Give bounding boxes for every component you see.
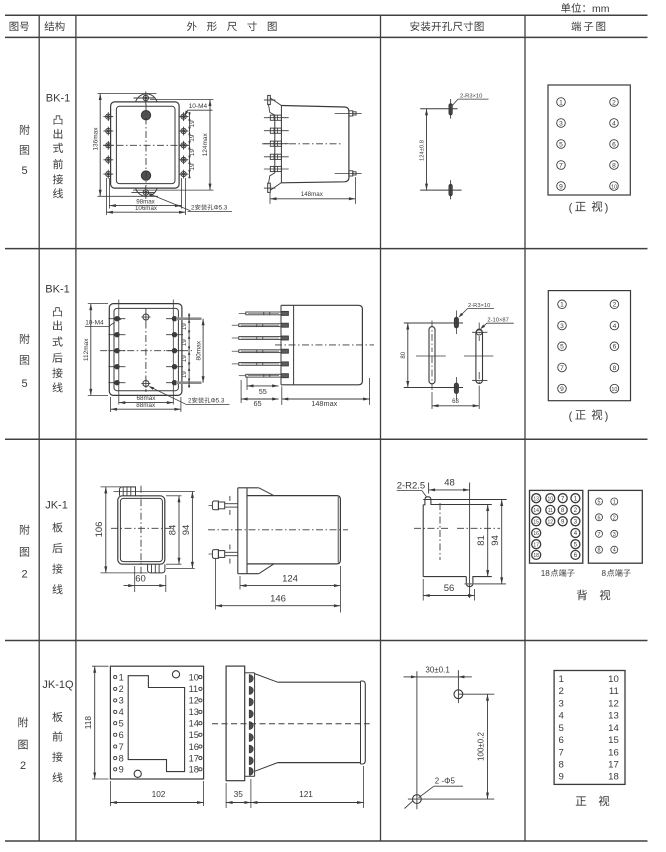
svg-text:118: 118 [83, 716, 93, 730]
svg-text:2: 2 [188, 398, 192, 405]
svg-text:11: 11 [609, 686, 619, 697]
svg-text:5: 5 [574, 542, 578, 548]
svg-text:6: 6 [613, 344, 617, 351]
svg-text:88max: 88max [136, 402, 156, 409]
svg-text:7: 7 [560, 365, 564, 372]
svg-text:56: 56 [444, 583, 455, 594]
svg-text:9: 9 [559, 772, 564, 783]
svg-text:2: 2 [21, 568, 27, 580]
svg-text:15: 15 [608, 735, 619, 746]
svg-text:17: 17 [533, 542, 539, 548]
svg-text:1: 1 [560, 302, 564, 309]
svg-text:3: 3 [560, 323, 564, 330]
svg-text:4: 4 [574, 531, 578, 537]
svg-text:2 -Φ5: 2 -Φ5 [435, 776, 456, 785]
svg-text:94: 94 [181, 525, 192, 536]
svg-text:4: 4 [613, 323, 617, 330]
svg-text:7: 7 [559, 747, 564, 758]
svg-text:19: 19 [181, 339, 188, 347]
svg-text:9: 9 [119, 765, 124, 775]
svg-text:2-R3×10: 2-R3×10 [460, 93, 482, 99]
svg-text:Φ5.3: Φ5.3 [211, 398, 225, 405]
svg-text:14: 14 [189, 719, 199, 729]
svg-text:8: 8 [119, 753, 124, 763]
svg-text:18: 18 [541, 569, 551, 578]
svg-text:7: 7 [559, 162, 563, 169]
svg-text:1: 1 [613, 500, 616, 506]
svg-text:146: 146 [270, 593, 286, 604]
svg-text:BK-1: BK-1 [45, 284, 69, 296]
svg-text:5: 5 [21, 378, 27, 390]
svg-text:16: 16 [608, 747, 619, 758]
svg-text:19: 19 [189, 134, 196, 142]
svg-text:84: 84 [167, 525, 178, 536]
svg-text:6: 6 [119, 730, 124, 740]
svg-text:2: 2 [613, 515, 616, 521]
svg-text:mm: mm [592, 3, 610, 15]
svg-text:2: 2 [191, 205, 195, 212]
svg-text:): ) [605, 202, 609, 214]
svg-text:2-R3×10: 2-R3×10 [468, 303, 490, 309]
svg-text:55: 55 [259, 387, 267, 396]
svg-text:14: 14 [533, 508, 539, 514]
svg-text:15: 15 [189, 730, 199, 740]
svg-text:7: 7 [561, 496, 565, 502]
svg-text:12: 12 [548, 519, 554, 525]
svg-text:136max: 136max [93, 127, 100, 151]
svg-text:16: 16 [189, 742, 199, 752]
svg-text:10-M4: 10-M4 [85, 320, 104, 327]
svg-text:13: 13 [533, 496, 539, 502]
svg-text:7: 7 [598, 532, 601, 538]
svg-text:7: 7 [119, 742, 124, 752]
svg-text:18: 18 [189, 765, 199, 775]
svg-text:10: 10 [608, 674, 619, 685]
svg-text:102: 102 [152, 789, 166, 799]
svg-text:3: 3 [559, 698, 564, 709]
svg-text:16: 16 [533, 531, 539, 537]
svg-text:12: 12 [608, 698, 619, 709]
svg-text:121: 121 [299, 789, 313, 799]
svg-text:BK-1: BK-1 [46, 93, 70, 105]
svg-text:65: 65 [253, 399, 261, 408]
svg-text:19: 19 [181, 355, 188, 363]
svg-text:3: 3 [559, 120, 563, 127]
svg-text:106: 106 [94, 522, 105, 538]
svg-text:80max: 80max [195, 340, 202, 360]
svg-text:18: 18 [533, 553, 539, 559]
svg-text:2: 2 [20, 760, 26, 772]
svg-text:8: 8 [559, 760, 564, 771]
svg-text:68: 68 [452, 399, 459, 405]
svg-text:5: 5 [559, 141, 563, 148]
svg-text:2: 2 [559, 686, 564, 697]
svg-text:5: 5 [21, 165, 27, 177]
svg-text:19: 19 [189, 120, 196, 128]
svg-text:5: 5 [560, 344, 564, 351]
svg-text:10: 10 [611, 387, 617, 393]
svg-text:68max: 68max [137, 395, 157, 402]
svg-text:): ) [605, 410, 609, 422]
svg-text:10-M4: 10-M4 [189, 103, 208, 110]
svg-text:9: 9 [559, 183, 563, 190]
svg-text:11: 11 [189, 684, 199, 694]
svg-text:8: 8 [598, 548, 601, 554]
svg-text:1: 1 [559, 674, 564, 685]
svg-text:106max: 106max [135, 205, 158, 212]
svg-text:JK-1: JK-1 [45, 500, 68, 512]
svg-text:19: 19 [181, 323, 188, 331]
svg-text:(: ( [569, 410, 573, 422]
svg-text:2-10×87: 2-10×87 [487, 317, 508, 323]
svg-text:8: 8 [602, 569, 607, 578]
svg-text:10: 10 [189, 672, 199, 682]
svg-text:8: 8 [612, 162, 616, 169]
svg-text:(: ( [569, 202, 573, 214]
svg-text:5: 5 [119, 719, 124, 729]
svg-text:9: 9 [561, 519, 565, 525]
svg-text:13: 13 [189, 707, 199, 717]
svg-text:2: 2 [119, 684, 124, 694]
svg-text:60: 60 [135, 573, 146, 584]
svg-text:12: 12 [189, 696, 199, 706]
svg-text:3: 3 [119, 696, 124, 706]
svg-text:5: 5 [598, 500, 601, 506]
svg-text:148max: 148max [301, 191, 324, 198]
svg-text:4: 4 [559, 711, 565, 722]
svg-text:6: 6 [559, 735, 564, 746]
svg-text:10: 10 [611, 184, 617, 190]
svg-text:17: 17 [189, 753, 199, 763]
svg-text:100±0.2: 100±0.2 [476, 732, 485, 761]
svg-text:6: 6 [612, 141, 616, 148]
svg-text:81: 81 [476, 535, 487, 546]
svg-text:17: 17 [608, 760, 619, 771]
svg-text:19: 19 [189, 149, 196, 157]
svg-text:1: 1 [119, 672, 124, 682]
svg-text:3: 3 [574, 519, 578, 525]
svg-text:4: 4 [612, 120, 616, 127]
svg-text:2-R2.5: 2-R2.5 [397, 480, 426, 491]
svg-text:8: 8 [561, 508, 565, 514]
svg-text:JK-1Q: JK-1Q [42, 679, 74, 691]
svg-text:19: 19 [181, 371, 188, 379]
svg-text:2: 2 [613, 302, 617, 309]
svg-text:48: 48 [444, 478, 455, 489]
svg-text:80: 80 [401, 351, 407, 358]
svg-text:9: 9 [560, 386, 564, 393]
svg-text:3: 3 [613, 532, 616, 538]
svg-text:124: 124 [282, 573, 298, 584]
svg-text:4: 4 [613, 548, 616, 554]
svg-text:4: 4 [119, 707, 124, 717]
svg-text:13: 13 [608, 711, 619, 722]
svg-text:10: 10 [548, 496, 554, 502]
svg-text:6: 6 [598, 515, 601, 521]
svg-text:15: 15 [533, 519, 539, 525]
svg-text:1: 1 [574, 496, 578, 502]
svg-text:148max: 148max [311, 399, 337, 408]
svg-text:2: 2 [574, 508, 578, 514]
svg-text:30±0.1: 30±0.1 [425, 665, 450, 674]
svg-text:5: 5 [559, 723, 564, 734]
svg-text:8: 8 [613, 365, 617, 372]
svg-text:2: 2 [612, 99, 616, 106]
svg-text:19: 19 [189, 163, 196, 171]
svg-text:124±0.8: 124±0.8 [420, 140, 426, 161]
svg-text:35: 35 [234, 789, 244, 799]
svg-text:14: 14 [608, 723, 619, 734]
svg-text:11: 11 [548, 508, 553, 514]
svg-text:1: 1 [559, 99, 563, 106]
svg-text:Φ5.3: Φ5.3 [214, 205, 228, 212]
svg-text:112max: 112max [83, 338, 90, 361]
svg-text:18: 18 [608, 772, 619, 783]
svg-text:124max: 124max [202, 132, 209, 156]
svg-text:6: 6 [574, 553, 578, 559]
svg-text:94: 94 [490, 535, 501, 546]
